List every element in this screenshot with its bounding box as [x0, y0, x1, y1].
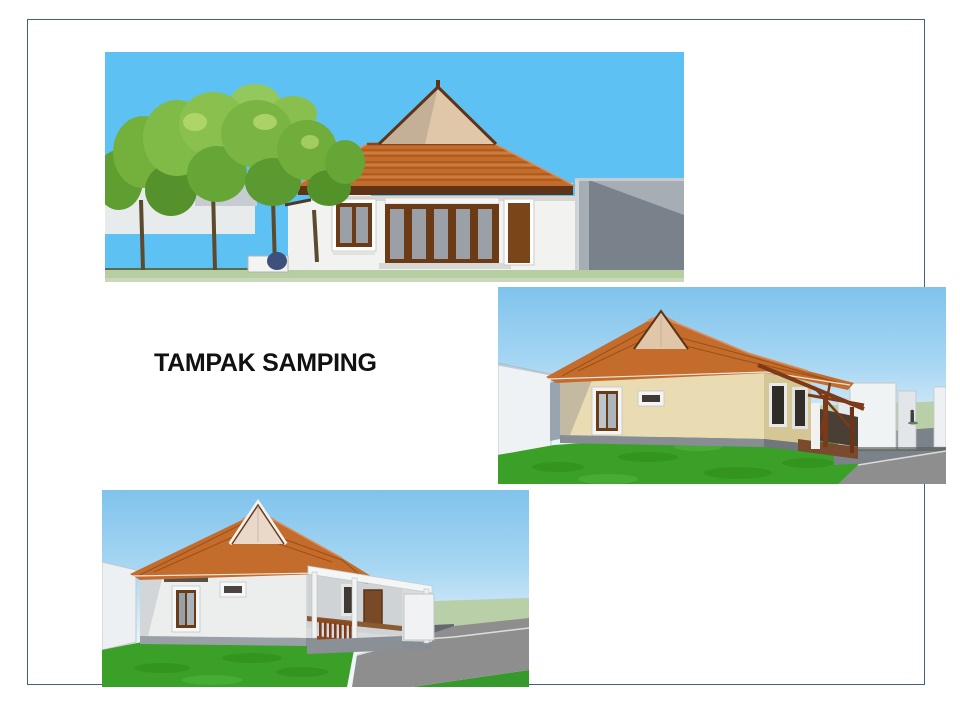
window — [592, 387, 622, 435]
perspective-rendering-left — [102, 490, 529, 687]
glass-doors — [379, 198, 511, 269]
left-fence-panel — [102, 562, 136, 650]
slide-title: TAMPAK SAMPING — [154, 349, 434, 378]
vent-window — [638, 391, 664, 406]
house-perspective — [130, 502, 434, 654]
white-wall-panel — [404, 594, 434, 640]
slide-canvas: TAMPAK SAMPING — [27, 19, 925, 685]
left-fence-panel — [498, 365, 551, 455]
ground — [105, 268, 684, 282]
ground-strip — [105, 270, 684, 278]
window — [172, 586, 200, 632]
window — [332, 199, 376, 255]
door — [504, 199, 534, 265]
shrub — [267, 252, 287, 270]
side-elevation-rendering — [105, 52, 684, 282]
porch-pillar — [811, 403, 820, 449]
vent-window — [220, 582, 246, 597]
perspective-rendering-right — [498, 287, 946, 484]
house-perspective — [546, 311, 864, 459]
